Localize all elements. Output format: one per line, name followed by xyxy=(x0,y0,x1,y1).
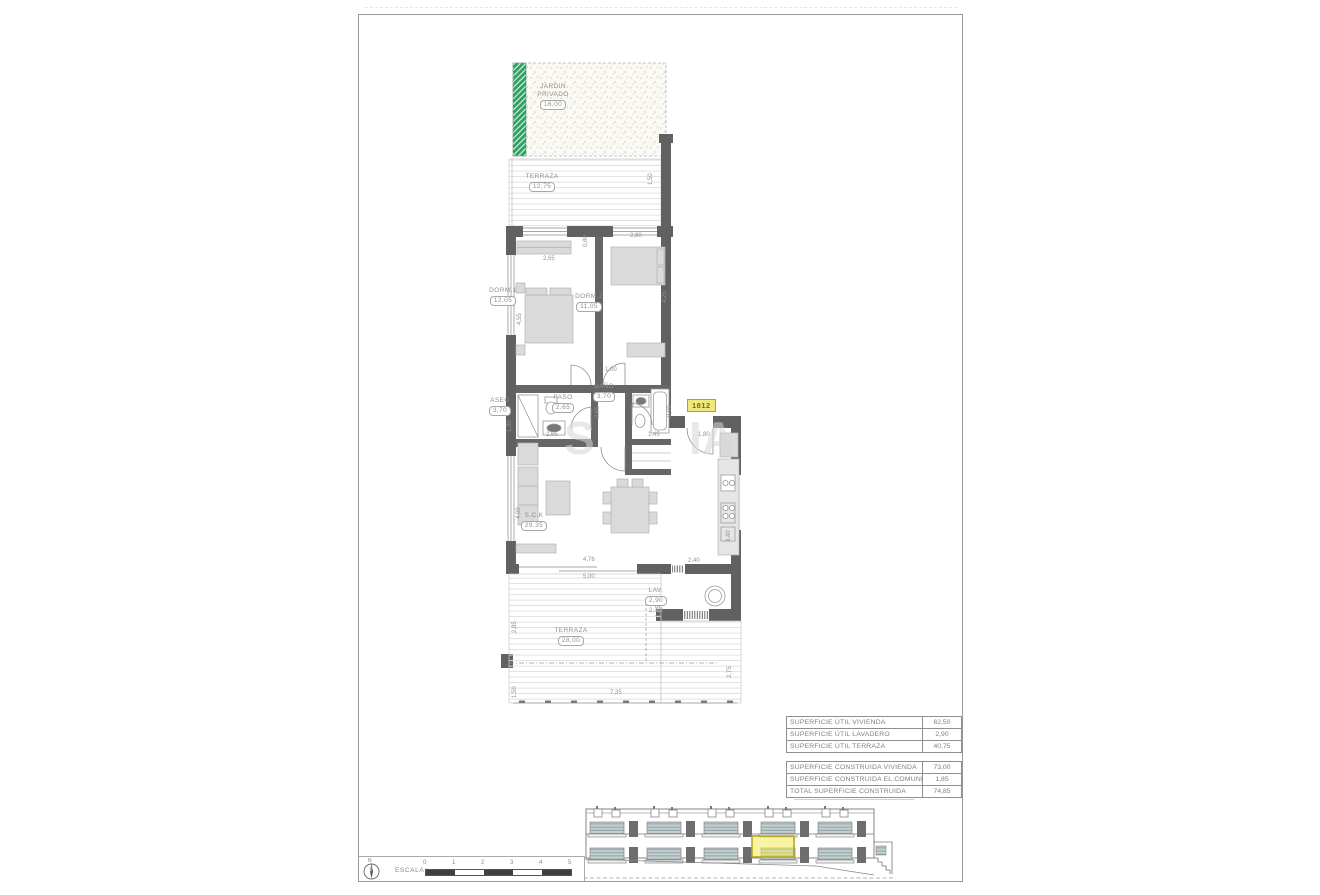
area-table-row: SUPERFICIE ÚTIL LAVADERO2,90 xyxy=(787,728,961,740)
area-table-row-value: 62,50 xyxy=(922,717,961,728)
area-table-row-value: 40,75 xyxy=(922,741,961,752)
area-table-row: SUPERFICIE CONSTRUIDA EL.COMUNES1,85 xyxy=(787,773,961,785)
dimension-label: 5,00 xyxy=(583,574,595,580)
room-area-value: 11,05 xyxy=(576,302,602,312)
dimension-label: 3,40 xyxy=(726,530,732,542)
room-name: DORM.2 xyxy=(544,293,634,301)
area-table-row: SUPERFICIE ÚTIL VIVIENDA62,50 xyxy=(787,717,961,728)
scale-tick-label: 4 xyxy=(539,860,542,866)
area-table-row: SUPERFICIE CONSTRUIDA VIVIENDA73,00 xyxy=(787,762,961,773)
area-table-construida: SUPERFICIE CONSTRUIDA VIVIENDA73,00SUPER… xyxy=(786,761,962,798)
dimension-label: 2,65 xyxy=(546,432,558,438)
room-name: JARDIN xyxy=(508,83,598,91)
room-name: DORM.1 xyxy=(458,287,548,295)
room-label-terraza-top: TERRAZA12,75 xyxy=(497,173,587,192)
dimension-label: 4,00 xyxy=(516,507,522,519)
area-table-row-value: 1,85 xyxy=(922,774,961,785)
elevation-building xyxy=(586,806,874,863)
unit-number-badge: 1812 xyxy=(687,399,716,412)
room-area-value: 16,00 xyxy=(540,100,566,110)
elevation-stairs xyxy=(874,842,892,874)
highlighted-unit xyxy=(752,836,794,857)
area-table-row-label: SUPERFICIE ÚTIL TERRAZA xyxy=(787,741,922,752)
dimension-label: 1,30 xyxy=(507,420,513,432)
dimension-label: 2,85 xyxy=(512,621,518,633)
dimension-label: 7,35 xyxy=(610,690,622,696)
dimension-label: 1,45 xyxy=(648,432,660,438)
dimension-label: 2,65 xyxy=(543,256,555,262)
room-label-jardin-privado: JARDINPRIVADO16,00 xyxy=(508,83,598,110)
scale-tick-label: 0 xyxy=(423,860,426,866)
room-name: PRIVADO xyxy=(508,91,598,99)
area-table-row-value: 74,85 xyxy=(922,786,961,797)
room-label-salon-cocina: S.C.K29,35 xyxy=(489,512,579,531)
room-label-terraza-bottom: TERRAZA28,00 xyxy=(526,627,616,646)
sheet-top-dashes xyxy=(365,7,957,8)
room-area-value: 12,75 xyxy=(529,182,555,192)
dimension-label: 0,80 xyxy=(583,235,589,247)
area-table-row-label: SUPERFICIE ÚTIL LAVADERO xyxy=(787,729,922,740)
dimension-label: 4,25 xyxy=(662,291,668,303)
room-area-value: 29,35 xyxy=(521,521,547,531)
room-name: S.C.K xyxy=(489,512,579,520)
dimension-label: 4,55 xyxy=(517,313,523,325)
scale-bar-segment xyxy=(484,870,513,875)
watermark-text: S xyxy=(564,411,595,465)
drawing-sheet: JARDINPRIVADO16,00TERRAZA12,75DORM.112,0… xyxy=(358,14,963,882)
scale-tick-label: 3 xyxy=(510,860,513,866)
scale-tick-label: 2 xyxy=(481,860,484,866)
scale-bar-segment xyxy=(455,870,484,875)
dimension-label: 1,35 xyxy=(656,605,662,617)
scale-bar-segments xyxy=(425,869,572,876)
area-table-row: SUPERFICIE ÚTIL TERRAZA40,75 xyxy=(787,740,961,752)
room-name: LAV. xyxy=(611,587,701,595)
scale-tick-label: 5 xyxy=(568,860,571,866)
area-table-row-label: SUPERFICIE ÚTIL VIVIENDA xyxy=(787,717,922,728)
room-area-value: 3,70 xyxy=(489,406,511,416)
room-area-value: 12,05 xyxy=(490,296,516,306)
area-table-row-label: SUPERFICIE CONSTRUIDA VIVIENDA xyxy=(787,762,922,773)
dimension-label: 1,50 xyxy=(648,173,654,185)
scale-tick-label: 1 xyxy=(452,860,455,866)
dimension-label: 2,65 xyxy=(595,406,601,418)
dimension-label: 4,76 xyxy=(583,557,595,563)
dimension-label: 2,80 xyxy=(630,233,642,239)
room-label-dorm-2: DORM.211,05 xyxy=(544,293,634,312)
watermark-text: IA xyxy=(689,411,735,465)
dimension-label: 1,00 xyxy=(605,367,617,373)
scale-bar-segment xyxy=(426,870,455,875)
scale-bar-segment xyxy=(542,870,571,875)
dimension-label: 2,75 xyxy=(727,666,733,678)
room-name: TERRAZA xyxy=(526,627,616,635)
scale-bar: N ESCALA : 012345 xyxy=(359,856,585,881)
room-area-value: 28,00 xyxy=(558,636,584,646)
dimension-label: 0,90 xyxy=(667,405,673,417)
scale-bar-segment xyxy=(513,870,542,875)
dimension-label: 1,50 xyxy=(512,686,518,698)
room-label-bano: BAÑO3,70 xyxy=(559,383,649,402)
room-label-dorm-1: DORM.112,05 xyxy=(458,287,548,306)
area-table-row-value: 2,90 xyxy=(922,729,961,740)
room-name: BAÑO xyxy=(559,383,649,391)
scale-label: ESCALA : xyxy=(395,867,429,874)
building-elevation-drawing xyxy=(576,796,898,892)
room-name: TERRAZA xyxy=(497,173,587,181)
area-table-row-value: 73,00 xyxy=(922,762,961,773)
room-area-value: 3,70 xyxy=(593,392,615,402)
area-table-util: SUPERFICIE ÚTIL VIVIENDA62,50SUPERFICIE … xyxy=(786,716,962,753)
dimension-label: 2,40 xyxy=(688,558,700,564)
area-table-row-label: SUPERFICIE CONSTRUIDA EL.COMUNES xyxy=(787,774,922,785)
north-compass-icon xyxy=(363,863,380,880)
